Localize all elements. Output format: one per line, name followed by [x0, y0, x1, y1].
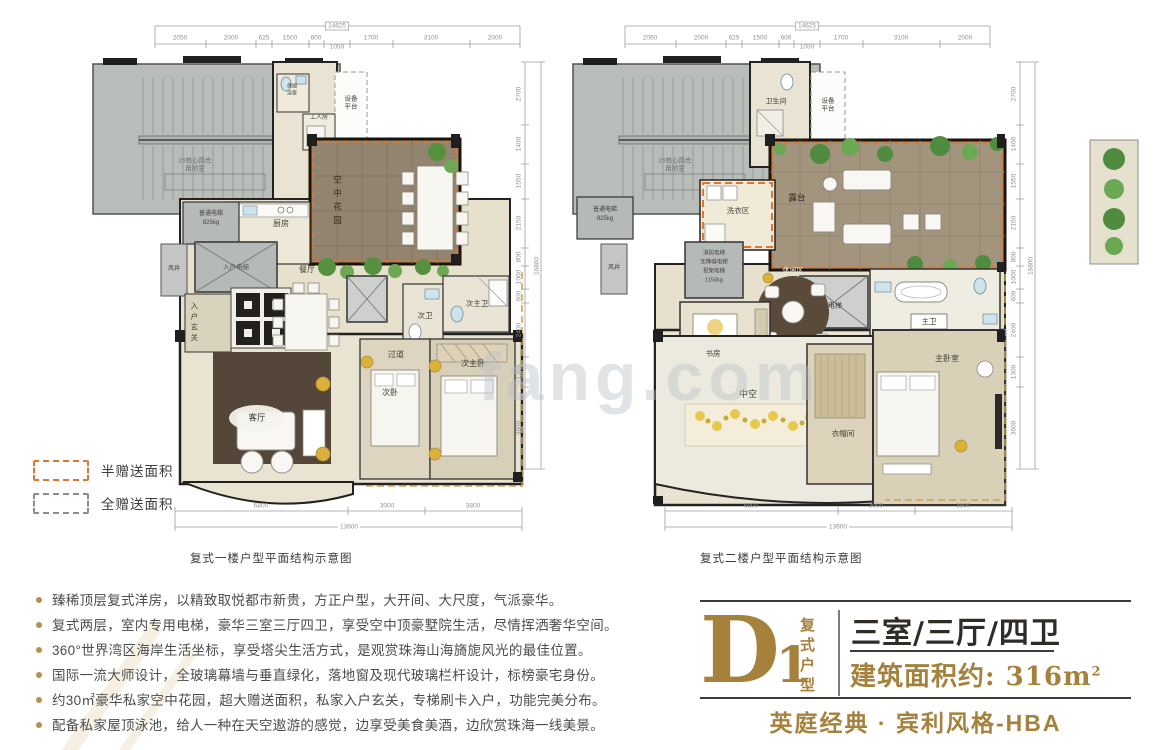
legend-label: 半赠送面积 [101, 460, 174, 480]
gold-bullet-icon [36, 722, 42, 728]
feature-text: 约30㎡豪华私家空中花园，超大赠送面积，私家入户玄关，专梯刷卡入户，功能完美分布… [52, 693, 606, 708]
room-label-second-master-bath: 次主卫 [466, 299, 489, 309]
gold-bullet-icon [36, 647, 42, 653]
room-label-fire-lift-3: 担架电梯 [703, 268, 725, 275]
dim-label: 13600 [338, 524, 360, 531]
dim-label: 600 [1011, 291, 1018, 302]
gold-bullet-icon [36, 697, 42, 703]
floor2-caption: 复式二楼户型平面结构示意图 [700, 550, 863, 566]
dim-label: 14625 [795, 22, 819, 31]
dim-label: 3600 [1011, 421, 1018, 435]
dim-label: 1700 [834, 35, 848, 42]
room-label-lift: 电梯 [828, 301, 842, 310]
dim-label: 1050 [800, 44, 814, 51]
feature-item: 配备私家屋顶泳池，给人一种在天空遨游的感觉，边享受美食美酒，边欣赏珠海一线美景。 [36, 718, 646, 733]
dim-label: 3100 [894, 35, 908, 42]
gold-bullet-icon [36, 672, 42, 678]
dim-label: 2400 [516, 323, 523, 337]
room-label-equipment: 设备平台 [343, 96, 359, 113]
dim-label: 1500 [283, 35, 297, 42]
area-superscript: 2 [1091, 664, 1101, 679]
feature-text: 国际一流大师设计，全玻璃幕墙与垂直绿化，落地窗及现代玻璃栏杆设计，标榜豪宅身份。 [52, 668, 604, 683]
dim-label: 2000 [694, 35, 708, 42]
room-label-void: 中空 [739, 389, 757, 401]
dim-label: 625 [729, 35, 740, 42]
feature-list: 臻稀顶层复式洋房，以精致取悦都市新贵，方正户型，大开间、大尺度，气派豪华。 复式… [36, 593, 646, 743]
room-label-living: 客厅 [248, 412, 265, 423]
floorplan-second-floor: 2#核心筒合用前室 卫生间 设备平台 露台 洗衣区 普通电梯 825kg 风井 … [565, 14, 1147, 546]
room-label-sky-garden: 空中花园 [331, 175, 342, 229]
floorplan-page: fang.com [0, 0, 1155, 750]
dim-label: 1000 [516, 270, 523, 284]
area-label: 建筑面积约: [850, 662, 996, 692]
room-label-normal-lift-load: 825kg [203, 220, 219, 228]
room-label-laundry: 洗衣区 [727, 206, 750, 216]
dim-label: 2000 [224, 35, 238, 42]
dim-label: 2150 [516, 216, 523, 230]
dim-label: 3800 [956, 503, 970, 510]
dim-label: 2150 [1011, 216, 1018, 230]
gold-bullet-icon [36, 597, 42, 603]
closet-area [807, 344, 873, 484]
living-room [213, 352, 331, 473]
dim-label: 1050 [330, 44, 344, 51]
room-label-fire-lift-2: 无障碍电梯 [700, 259, 728, 266]
dim-label: 16800 [1028, 257, 1035, 275]
feature-item: 臻稀顶层复式洋房，以精致取悦都市新贵，方正户型，大开间、大尺度，气派豪华。 [36, 593, 646, 608]
room-label-second-bedroom: 次卧 [382, 388, 398, 398]
room-label-kitchen: 厨房 [273, 219, 289, 229]
dim-label: 600 [311, 35, 322, 42]
feature-text: 配备私家屋顶泳池，给人一种在天空遨游的感觉，边享受美食美酒，边欣赏珠海一线美景。 [52, 718, 604, 733]
room-label-leisure: 休闲区 [783, 266, 804, 275]
legend-row-half-gift: 半赠送面积 [33, 459, 174, 481]
dim-label: 1000 [1011, 270, 1018, 284]
dim-label: 600 [781, 35, 792, 42]
room-label-core: 2#核心筒合用前室 [657, 158, 693, 175]
room-label-study: 书房 [706, 349, 721, 359]
room-label-closet: 衣帽间 [832, 429, 855, 439]
gold-bullet-icon [36, 622, 42, 628]
dim-label: 16800 [534, 257, 541, 275]
dim-label: 1300 [516, 365, 523, 379]
room-label-master-bedroom: 主卧室 [935, 354, 959, 364]
floorplan-second-floor-drawing [565, 14, 1147, 546]
full-gift-dash-swatch [33, 493, 89, 514]
room-label-wind-shaft: 风井 [608, 265, 620, 273]
dim-label: 3800 [466, 503, 480, 510]
unit-model-letter: D [700, 604, 780, 696]
dim-label: 2000 [958, 35, 972, 42]
room-label-normal-lift: 普通电梯 [593, 207, 617, 215]
feature-item: 360°世界湾区海岸生活坐标，享受塔尖生活方式，是观赏珠海山海旖旎风光的最佳位置… [36, 643, 646, 658]
dim-label: 2700 [1011, 87, 1018, 101]
living-bay [183, 482, 353, 504]
room-label-worker-room: 工人房 [310, 115, 328, 123]
room-label-normal-lift: 普通电梯 [199, 211, 223, 219]
dim-label: 1550 [1011, 174, 1018, 188]
dim-label: 1550 [516, 174, 523, 188]
room-label-nanny-bath: 保姆浴室 [286, 84, 298, 97]
feature-text: 360°世界湾区海岸生活坐标，享受塔尖生活方式，是观赏珠海山海旖旎风光的最佳位置… [52, 643, 592, 658]
dim-label: 2700 [516, 87, 523, 101]
room-label-equipment: 设备平台 [820, 98, 836, 115]
dim-label: 3600 [516, 421, 523, 435]
dim-label: 600 [516, 291, 523, 302]
bedrooms [360, 339, 515, 479]
room-label-entry-lift: 入户电梯 [223, 264, 249, 272]
gift-area-legend: 半赠送面积 全赠送面积 [33, 459, 174, 525]
room-label-master-bath: 主卫 [922, 317, 937, 327]
dim-label: 14625 [325, 22, 349, 31]
dim-label: 2400 [1011, 323, 1018, 337]
dim-label: 1400 [516, 137, 523, 151]
unit-area: 建筑面积约: 316m2 [850, 656, 1102, 693]
feature-text: 臻稀顶层复式洋房，以精致取悦都市新贵，方正户型，大开间、大尺度，气派豪华。 [52, 593, 563, 608]
room-label-foyer: 入户玄关 [189, 302, 199, 344]
dim-label: 1700 [364, 35, 378, 42]
legend-row-full-gift: 全赠送面积 [33, 492, 174, 514]
room-label-core: 2#核心筒合用前室 [177, 158, 213, 175]
floor1-caption: 复式一楼户型平面结构示意图 [190, 550, 353, 566]
area-value: 316m [1006, 662, 1092, 692]
unit-model-badge: D1 [700, 604, 811, 696]
unit-layout: 三室/三厅/四卫 [851, 608, 1061, 652]
dim-label: 3000 [380, 503, 394, 510]
dim-label: 800 [1011, 252, 1018, 263]
room-label-dining: 餐厅 [299, 265, 315, 275]
room-label-second-bath: 次卫 [418, 311, 433, 321]
legend-label: 全赠送面积 [101, 493, 174, 513]
half-gift-dash-swatch [33, 460, 89, 481]
dim-label: 1400 [1011, 137, 1018, 151]
room-label-corridor: 过道 [388, 350, 404, 360]
feature-item: 复式两层，室内专用电梯，豪华三室三厅四卫，享受空中顶豪墅院生活，尽情挥洒奢华空间… [36, 618, 646, 633]
feature-item: 国际一流大师设计，全玻璃幕墙与垂直绿化，落地窗及现代玻璃栏杆设计，标榜豪宅身份。 [36, 668, 646, 683]
dim-label: 3000 [869, 503, 883, 510]
dim-label: 3100 [424, 35, 438, 42]
room-label-fire-lift-1: 消防电梯 [703, 250, 725, 257]
dim-label: 1300 [1011, 365, 1018, 379]
dim-label: 13600 [827, 524, 849, 531]
feature-item: 约30㎡豪华私家空中花园，超大赠送面积，私家入户玄关，专梯刷卡入户，功能完美分布… [36, 693, 646, 708]
brand-tagline: 英庭经典 · 宾利风格-HBA [700, 704, 1131, 738]
info-vertical-divider [838, 610, 840, 696]
unit-model-type: 复式户型 [796, 617, 817, 699]
dim-label: 2000 [488, 35, 502, 42]
room-label-normal-lift-load: 825kg [597, 216, 613, 224]
info-bottom-rule [700, 697, 1131, 699]
dim-label: 800 [516, 252, 523, 263]
dim-label: 2050 [643, 35, 657, 42]
info-mid-rule [850, 650, 1054, 652]
feature-text: 复式两层，室内专用电梯，豪华三室三厅四卫，享受空中顶豪墅院生活，尽情挥洒奢华空间… [52, 618, 618, 633]
room-label-terrace: 露台 [788, 192, 805, 203]
dim-label: 1500 [753, 35, 767, 42]
room-label-second-master-bedroom: 次主卧 [461, 359, 485, 369]
dim-label: 6800 [744, 503, 758, 510]
dim-label: 2050 [173, 35, 187, 42]
dim-label: 625 [259, 35, 270, 42]
dim-label: 6800 [254, 503, 268, 510]
room-label-fire-lift-load: 1150kg [705, 277, 723, 284]
room-label-bathroom: 卫生间 [766, 97, 787, 106]
planter-strip [1090, 140, 1138, 264]
room-label-wind-shaft: 风井 [168, 266, 180, 274]
